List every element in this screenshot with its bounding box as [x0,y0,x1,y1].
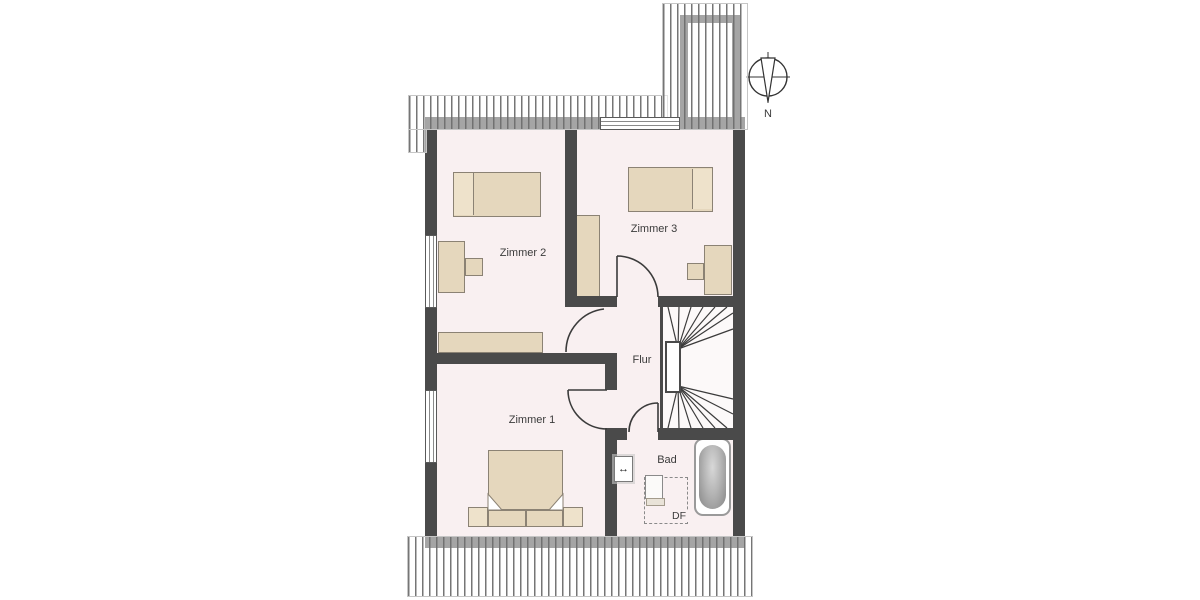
plan-overlay [0,0,1200,600]
roof-hatch-top-step [408,129,427,153]
stair-landing [666,342,680,392]
door-zimmer2 [566,309,604,352]
window-north [600,117,680,130]
bed-fold-icon [488,494,502,510]
window-zimmer1-west [425,390,437,463]
winder-stairs-icon [666,307,733,428]
door-zimmer1 [568,390,607,429]
room-label-flur: Flur [633,354,652,366]
roof-hatch-dormer [662,3,748,130]
door-bad [629,403,658,432]
roof-window-label: DF [670,510,688,522]
room-label-zimmer3: Zimmer 3 [631,223,677,235]
room-label-bad: Bad [657,454,677,466]
bed-fold-icon [549,494,563,510]
door-zimmer3 [617,256,658,297]
north-compass-icon [746,52,790,103]
roof-hatch-bottom [407,536,753,597]
room-label-zimmer2: Zimmer 2 [500,247,546,259]
north-label: N [764,108,772,120]
window-zimmer2-west [425,235,437,308]
floor-plan: ↔ [0,0,1200,600]
room-label-zimmer1: Zimmer 1 [509,414,555,426]
